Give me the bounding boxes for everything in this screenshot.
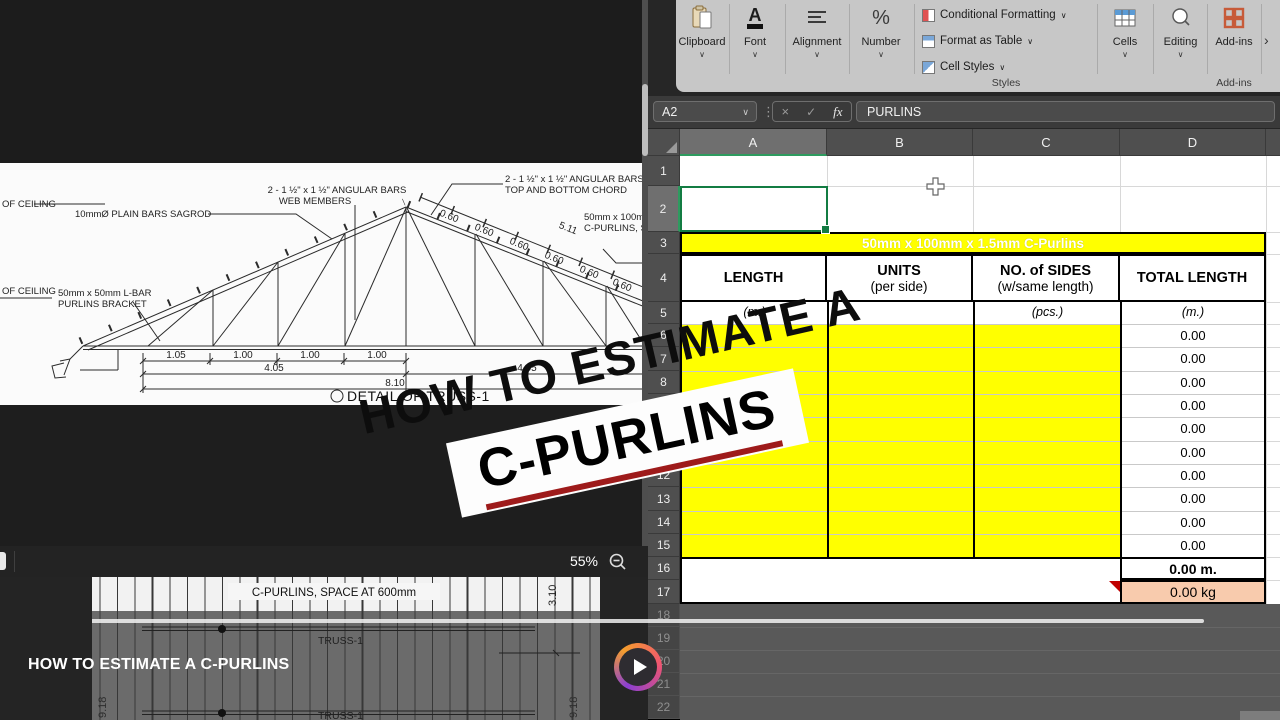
row-header-17[interactable]: 17 xyxy=(648,580,680,604)
cell-styles-icon xyxy=(922,61,935,74)
comment-marker-icon xyxy=(1109,581,1120,592)
table-row-input-cell[interactable] xyxy=(973,511,1120,534)
zoom-out-icon[interactable] xyxy=(608,552,628,572)
gridline xyxy=(1267,417,1280,418)
gridline xyxy=(1267,302,1280,303)
gridline xyxy=(1267,232,1280,233)
ribbon-group-cells[interactable]: Cells ∨ xyxy=(1098,0,1152,92)
row-header-3[interactable]: 3 xyxy=(648,232,680,254)
row-header-16[interactable]: 16 xyxy=(648,557,680,580)
number-chevron-icon: ∨ xyxy=(850,51,912,59)
label-chord-2: TOP AND BOTTOM CHORD xyxy=(505,185,627,196)
table-row-total-cell[interactable]: 0.00 xyxy=(1120,324,1266,347)
clipboard-chevron-icon: ∨ xyxy=(676,51,728,59)
gridline xyxy=(1267,441,1280,442)
table-row-input-cell[interactable] xyxy=(973,441,1120,464)
gridline xyxy=(1267,347,1280,348)
formula-input[interactable]: PURLINS xyxy=(856,101,1275,122)
table-row-total-cell[interactable]: 0.00 xyxy=(1120,394,1266,417)
subheader-c[interactable]: (pcs.) xyxy=(973,302,1120,324)
table-row-input-cell[interactable] xyxy=(680,534,827,557)
header-cell-total[interactable]: TOTAL LENGTH xyxy=(1118,254,1266,302)
table-row-input-cell[interactable] xyxy=(827,487,973,511)
play-icon xyxy=(634,659,647,675)
label-web-members-2: WEB MEMBERS xyxy=(279,196,351,207)
label-bracket-2: PURLINS BRACKET xyxy=(58,299,147,310)
video-progress-bar[interactable] xyxy=(92,619,1204,623)
gridline xyxy=(680,650,1280,651)
label-sagrod: 10mmØ PLAIN BARS SAGROD xyxy=(75,209,211,220)
editing-magnifier-icon xyxy=(1154,3,1207,33)
gridline xyxy=(973,156,974,232)
viewer-scrollbar-thumb[interactable] xyxy=(642,84,648,156)
table-row-input-cell[interactable] xyxy=(973,324,1120,347)
percent-icon: % xyxy=(850,3,912,33)
gridline xyxy=(680,627,1280,628)
table-row-input-cell[interactable] xyxy=(827,394,973,417)
select-all-corner[interactable] xyxy=(648,129,680,156)
editing-chevron-icon: ∨ xyxy=(1154,51,1207,59)
ribbon-group-editing[interactable]: Editing ∨ xyxy=(1154,0,1207,92)
weight-row-spacer[interactable] xyxy=(680,580,1120,604)
gridline xyxy=(1267,511,1280,512)
table-row-total-cell[interactable]: 0.00 xyxy=(1120,417,1266,441)
table-border xyxy=(973,324,975,557)
conditional-formatting-button[interactable]: Conditional Formatting∨ xyxy=(922,4,1067,26)
plan-truss-label: TRUSS-1 xyxy=(318,635,363,647)
name-box-chevron-icon: ∨ xyxy=(742,102,749,123)
editing-label: Editing xyxy=(1154,36,1207,48)
alignment-chevron-icon: ∨ xyxy=(786,51,848,59)
styles-group-label: Styles xyxy=(922,77,1090,89)
ribbon-divider xyxy=(1261,4,1262,74)
dim-4-05: 4.05 xyxy=(264,363,284,374)
label-bracket-1: 50mm x 50mm L-BAR xyxy=(58,288,152,299)
clipboard-icon xyxy=(676,3,728,33)
table-title-cell[interactable]: 50mm x 100mm x 1.5mm C-Purlins xyxy=(680,232,1266,254)
table-row-input-cell[interactable] xyxy=(827,417,973,441)
gridline xyxy=(1267,487,1280,488)
ribbon-group-font[interactable]: A Font ∨ xyxy=(730,0,780,92)
table-row-input-cell[interactable] xyxy=(827,347,973,371)
label-chord-1: 2 - 1 ½" x 1 ½" ANGULAR BARS xyxy=(505,174,644,185)
label-top-of-ceiling: OF CEILING xyxy=(2,199,56,210)
label-web-members-1: 2 - 1 ½" x 1 ½" ANGULAR BARS xyxy=(268,185,407,196)
ribbon-overflow-chevron[interactable]: › xyxy=(1264,32,1269,48)
row-header-19[interactable]: 19 xyxy=(648,627,680,650)
dim-1-00: 1.00 xyxy=(367,350,387,361)
column-header-e-sliver[interactable] xyxy=(1266,129,1280,156)
cell-cursor-icon xyxy=(926,177,945,196)
total-length-cell[interactable]: 0.00 m. xyxy=(1120,557,1266,580)
cells-chevron-icon: ∨ xyxy=(1098,51,1152,59)
dim-1-00: 1.00 xyxy=(300,350,320,361)
table-row-input-cell[interactable] xyxy=(973,394,1120,417)
row-header-14[interactable]: 14 xyxy=(648,511,680,534)
table-row-input-cell[interactable] xyxy=(827,464,973,487)
select-all-icon xyxy=(666,142,677,153)
format-as-table-button[interactable]: Format as Table∨ xyxy=(922,30,1033,52)
table-row-input-cell[interactable] xyxy=(973,487,1120,511)
row-header-22[interactable]: 22 xyxy=(648,696,680,719)
table-row-input-cell[interactable] xyxy=(680,511,827,534)
font-chevron-icon: ∨ xyxy=(730,51,780,59)
table-row-input-cell[interactable] xyxy=(973,347,1120,371)
column-header-d[interactable]: D xyxy=(1120,129,1266,156)
plan-spacing-label: C-PURLINS, SPACE AT 600mm xyxy=(252,587,416,599)
column-header-a[interactable]: A xyxy=(680,129,827,156)
name-box[interactable]: A2∨ xyxy=(653,101,757,122)
active-cell-a2 xyxy=(680,186,828,232)
font-label: Font xyxy=(730,36,780,48)
ribbon-group-number[interactable]: % Number ∨ xyxy=(850,0,912,92)
video-title: HOW TO ESTIMATE A C-PURLINS xyxy=(28,656,289,674)
gridline xyxy=(1267,534,1280,535)
alignment-icon xyxy=(786,3,848,33)
total-weight-cell[interactable]: 0.00 kg xyxy=(1120,580,1266,604)
cells-icon xyxy=(1098,3,1152,33)
table-row-input-cell[interactable] xyxy=(973,534,1120,557)
gridline xyxy=(1267,254,1280,255)
addins-icon xyxy=(1208,3,1260,33)
gridline xyxy=(1266,156,1267,604)
number-label: Number xyxy=(850,36,912,48)
ribbon-group-alignment[interactable]: Alignment ∨ xyxy=(786,0,848,92)
clipboard-label: Clipboard xyxy=(676,36,728,48)
dim-1-00: 1.00 xyxy=(233,350,253,361)
enter-icon[interactable]: ✓ xyxy=(806,105,816,119)
plan-dim-3-10: 3.10 xyxy=(547,585,559,606)
table-row-total-cell[interactable]: 0.00 xyxy=(1120,511,1266,534)
gridline xyxy=(1267,394,1280,395)
column-header-b[interactable]: B xyxy=(827,129,973,156)
table-row-input-cell[interactable] xyxy=(827,371,973,394)
plan-truss-label-2: TRUSS-1 xyxy=(318,710,363,720)
row-header-13[interactable]: 13 xyxy=(648,487,680,511)
viewer-background-top xyxy=(0,0,648,163)
gridline xyxy=(1267,464,1280,465)
gridline xyxy=(1267,557,1280,558)
cell-styles-button[interactable]: Cell Styles∨ xyxy=(922,56,1005,78)
ribbon-group-clipboard[interactable]: Clipboard ∨ xyxy=(676,0,728,92)
table-row-input-cell[interactable] xyxy=(680,464,827,487)
formula-bar: A2∨ ⋮ × ✓ fx PURLINS xyxy=(648,96,1280,128)
plan-margin-left xyxy=(0,577,92,720)
fill-handle[interactable] xyxy=(821,225,830,234)
table-row-input-cell[interactable] xyxy=(973,371,1120,394)
row-header-15[interactable]: 15 xyxy=(648,534,680,557)
row-header-18[interactable]: 18 xyxy=(648,604,680,627)
viewer-edge-button[interactable] xyxy=(0,552,6,570)
cancel-icon[interactable]: × xyxy=(781,104,789,119)
row-header-1[interactable]: 1 xyxy=(648,156,680,186)
plan-dim-9-18: 9.18 xyxy=(97,697,109,718)
format-as-table-icon xyxy=(922,35,935,48)
subheader-d[interactable]: (m.) xyxy=(1120,302,1266,324)
scroll-corner xyxy=(1240,711,1280,720)
format-as-table-label: Format as Table xyxy=(940,35,1022,47)
table-row-total-cell[interactable]: 0.00 xyxy=(1120,464,1266,487)
row-header-4[interactable]: 4 xyxy=(648,254,680,302)
formula-buttons: × ✓ fx xyxy=(772,101,852,122)
zoom-level-value: 55% xyxy=(548,551,598,572)
label-cpurlins-2: C-PURLINS, SPAC xyxy=(584,223,648,234)
gridline xyxy=(1267,580,1280,581)
row-header-2[interactable]: 2 xyxy=(648,186,680,232)
table-row-input-cell[interactable] xyxy=(827,534,973,557)
alignment-label: Alignment xyxy=(786,36,848,48)
play-button-inner xyxy=(619,648,657,686)
gridline xyxy=(680,696,1280,697)
table-row-total-cell[interactable]: 0.00 xyxy=(1120,371,1266,394)
play-button[interactable] xyxy=(614,643,662,691)
table-row-input-cell[interactable] xyxy=(827,511,973,534)
cells-label: Cells xyxy=(1098,36,1152,48)
insert-function-icon[interactable]: fx xyxy=(833,104,842,120)
dim-1-05: 1.05 xyxy=(166,350,186,361)
toolbar-divider xyxy=(14,551,15,572)
excel-ribbon: Clipboard ∨ A Font ∨ Alignment ∨ % Numbe… xyxy=(676,0,1280,92)
cell-styles-label: Cell Styles xyxy=(940,61,994,73)
table-row-total-cell[interactable]: 0.00 xyxy=(1120,347,1266,371)
table-row-input-cell[interactable] xyxy=(680,487,827,511)
table-row-input-cell[interactable] xyxy=(973,464,1120,487)
table-border xyxy=(827,324,829,557)
addins-label: Add-ins xyxy=(1208,36,1260,48)
video-frame: OF CEILING OF CEILING 10mmØ PLAIN BARS S… xyxy=(0,0,1280,720)
addins-group-label: Add-ins xyxy=(1208,77,1260,89)
gridline xyxy=(1267,371,1280,372)
label-cpurlins-1: 50mm x 100mm x 1 xyxy=(584,212,648,223)
table-row-total-cell[interactable]: 0.00 xyxy=(1120,441,1266,464)
gridline xyxy=(1120,156,1121,232)
gridline xyxy=(1267,324,1280,325)
conditional-formatting-icon xyxy=(922,9,935,22)
conditional-formatting-label: Conditional Formatting xyxy=(940,9,1056,21)
table-row-input-cell[interactable] xyxy=(827,441,973,464)
table-row-input-cell[interactable] xyxy=(973,417,1120,441)
table-row-total-cell[interactable]: 0.00 xyxy=(1120,534,1266,557)
ribbon-divider xyxy=(914,4,915,74)
font-icon: A xyxy=(730,3,780,33)
table-border xyxy=(1264,324,1266,557)
total-row-spacer[interactable] xyxy=(680,557,1120,580)
label-top-of-ceiling-2: OF CEILING xyxy=(2,286,56,297)
header-cell-sides[interactable]: NO. of SIDES(w/same length) xyxy=(971,254,1120,302)
gridline xyxy=(680,673,1280,674)
table-row-total-cell[interactable]: 0.00 xyxy=(1120,487,1266,511)
column-header-c[interactable]: C xyxy=(973,129,1120,156)
plan-dim-9-18-2: 9.18 xyxy=(568,697,580,718)
